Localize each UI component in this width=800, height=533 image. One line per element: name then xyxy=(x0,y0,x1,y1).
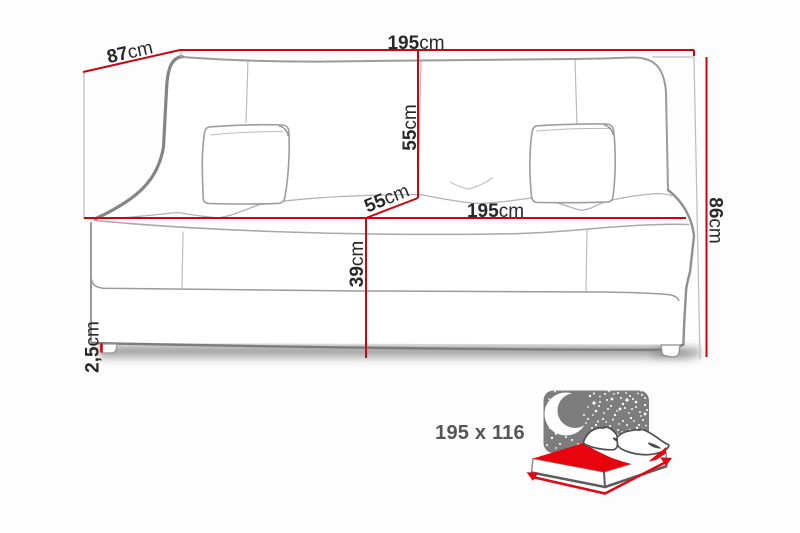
svg-text:55cm: 55cm xyxy=(400,104,421,150)
svg-text:86cm: 86cm xyxy=(705,197,726,243)
svg-text:195cm: 195cm xyxy=(387,33,444,54)
svg-text:195 x 116: 195 x 116 xyxy=(435,422,525,444)
svg-text:2,5cm: 2,5cm xyxy=(83,321,104,373)
svg-text:195cm: 195cm xyxy=(467,201,524,222)
svg-text:39cm: 39cm xyxy=(347,241,368,287)
svg-text:87cm: 87cm xyxy=(105,37,155,68)
